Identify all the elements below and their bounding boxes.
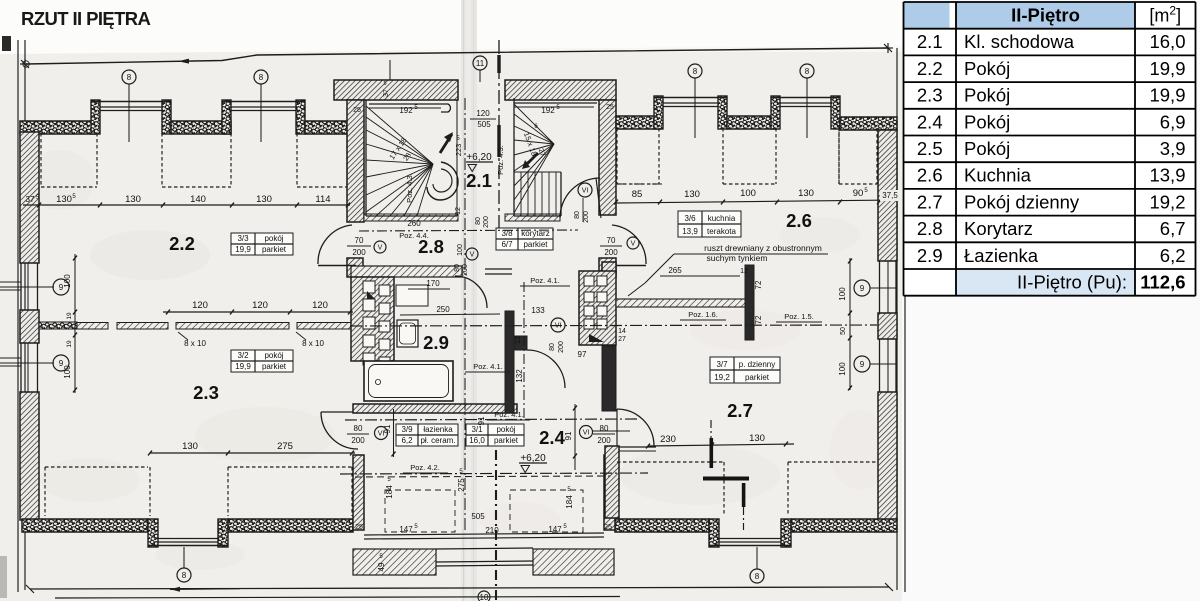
svg-text:pł. ceram.: pł. ceram. [420,436,455,445]
svg-text:Pokój: Pokój [964,111,1010,132]
svg-text:2.2: 2.2 [917,58,943,79]
svg-text:VI: VI [583,430,590,437]
svg-text:Poz. 1.6.: Poz. 1.6. [688,310,718,319]
svg-text:130: 130 [182,441,198,452]
svg-text:+6,20: +6,20 [520,453,546,464]
svg-text:80: 80 [454,264,461,272]
svg-text:100: 100 [63,274,72,288]
svg-text:49: 49 [377,562,386,571]
svg-text:9: 9 [860,360,865,369]
svg-text:2.6: 2.6 [786,210,812,231]
svg-text:12: 12 [740,268,748,275]
svg-text:114: 114 [315,194,330,205]
svg-text:8: 8 [259,73,264,82]
svg-text:112,6: 112,6 [1140,272,1185,293]
svg-text:97: 97 [578,350,587,359]
svg-text:kuchnia: kuchnia [708,214,736,223]
svg-text:72: 72 [754,315,763,324]
svg-text:2.2: 2.2 [169,233,195,254]
svg-text:19: 19 [66,312,73,320]
svg-text:70: 70 [355,236,364,245]
svg-text:200: 200 [352,248,366,257]
svg-text:19,9: 19,9 [1149,58,1185,79]
svg-text:140: 140 [190,194,206,205]
svg-text:80: 80 [549,343,556,351]
svg-text:8: 8 [755,572,760,581]
svg-text:6,7: 6,7 [1160,218,1186,239]
svg-text:130: 130 [256,194,272,205]
svg-text:6,2: 6,2 [401,436,413,445]
svg-text:37: 37 [383,89,390,97]
svg-text:184: 184 [565,495,574,509]
svg-text:ruszt drewniany z obustronnym: ruszt drewniany z obustronnym [704,243,822,253]
svg-text:pokój: pokój [264,234,283,243]
svg-text:37,5: 37,5 [882,191,898,200]
svg-text:6/7: 6/7 [501,240,513,249]
svg-text:200: 200 [558,341,565,353]
svg-text:Poz. 4.3.: Poz. 4.3. [405,173,414,203]
svg-text:130: 130 [749,433,765,444]
svg-text:200: 200 [483,216,490,228]
svg-text:Poz. 4.1.: Poz. 4.1. [530,276,560,285]
svg-text:120: 120 [312,300,328,311]
svg-text:Poz. 4.1.: Poz. 4.1. [494,410,524,419]
svg-text:p. dzienny: p. dzienny [739,360,775,369]
svg-text:2.7: 2.7 [917,191,943,212]
svg-text:2.1: 2.1 [466,170,492,191]
svg-text:3/3: 3/3 [237,234,249,243]
svg-text:133: 133 [531,306,545,315]
svg-text:10: 10 [480,593,489,601]
svg-text:8: 8 [182,571,187,580]
svg-text:210: 210 [485,526,499,535]
svg-text:200: 200 [604,248,618,257]
svg-text:Pokój dzienny: Pokój dzienny [964,191,1080,212]
svg-text:80: 80 [354,424,363,433]
svg-text:parkiet: parkiet [745,373,770,382]
svg-text:230: 230 [660,434,676,445]
svg-text:275: 275 [457,478,466,492]
svg-text:parkiet: parkiet [262,362,287,371]
svg-text:85: 85 [632,189,643,200]
svg-text:19,2: 19,2 [1149,191,1185,212]
svg-text:2.1: 2.1 [917,31,943,52]
svg-text:8 x 10: 8 x 10 [184,339,206,348]
svg-text:200: 200 [597,436,611,445]
svg-text:25: 25 [604,524,612,531]
svg-text:27: 27 [618,336,626,343]
svg-text:Pokój: Pokój [964,138,1010,159]
svg-text:Kuchnia: Kuchnia [964,165,1032,186]
svg-text:80: 80 [574,211,581,219]
svg-text:147: 147 [399,525,413,534]
svg-text:25: 25 [353,107,361,114]
svg-text:19,9: 19,9 [235,362,251,371]
svg-text:13,9: 13,9 [1149,165,1185,186]
svg-text:Poz. 4.3.: Poz. 4.3. [496,145,505,175]
svg-text:Łazienka: Łazienka [964,245,1039,266]
svg-text:16,0: 16,0 [469,436,485,445]
svg-text:14: 14 [618,328,626,335]
svg-text:80: 80 [475,217,482,225]
svg-text:80: 80 [600,424,609,433]
svg-text:70: 70 [607,236,616,245]
svg-text:V: V [378,245,383,252]
svg-text:2.3: 2.3 [193,382,219,403]
svg-text:147: 147 [548,525,562,534]
svg-text:II-Piętro (Pu):: II-Piętro (Pu): [1017,272,1127,293]
svg-text:Poz. 4.2.: Poz. 4.2. [410,463,440,472]
svg-text:184: 184 [385,485,394,499]
svg-text:łazienka: łazienka [423,425,453,434]
svg-text:3/7: 3/7 [716,360,728,369]
svg-text:130: 130 [125,194,141,205]
svg-text:265: 265 [668,266,682,275]
svg-text:RZUT II PIĘTRA: RZUT II PIĘTRA [21,8,151,29]
svg-text:25: 25 [606,104,614,111]
svg-text:37: 37 [26,195,35,204]
svg-text:2.7: 2.7 [727,400,753,421]
svg-text:505: 505 [477,120,491,129]
svg-text:505: 505 [471,512,485,521]
svg-text:pokój: pokój [264,351,283,360]
svg-text:Poz. 4.4.: Poz. 4.4. [399,231,429,240]
svg-text:6,9: 6,9 [1160,111,1186,132]
svg-text:260: 260 [407,219,421,228]
svg-text:13,9: 13,9 [682,227,698,236]
svg-text:72: 72 [754,280,763,289]
svg-text:pokój: pokój [496,425,515,434]
svg-text:2.4: 2.4 [539,427,565,448]
svg-text:2.3: 2.3 [917,85,943,106]
svg-text:+6,20: +6,20 [466,152,492,163]
svg-text:2.5: 2.5 [917,138,943,159]
svg-text:3/9: 3/9 [401,425,413,434]
svg-text:11: 11 [476,59,485,68]
svg-text:100: 100 [740,188,756,199]
svg-text:9: 9 [860,284,865,293]
svg-text:2.8: 2.8 [917,218,943,239]
svg-text:9: 9 [59,359,64,368]
svg-text:100: 100 [838,362,847,376]
svg-text:100: 100 [838,287,847,301]
svg-text:Pokój: Pokój [964,85,1010,106]
svg-text:275: 275 [277,441,293,452]
svg-text:192: 192 [399,106,413,115]
svg-text:91: 91 [477,416,486,425]
svg-text:parkiet: parkiet [262,245,287,254]
svg-text:25: 25 [355,524,363,531]
svg-text:parkiet: parkiet [494,436,519,445]
svg-text:9: 9 [59,283,64,292]
svg-text:16,0: 16,0 [1149,31,1185,52]
svg-text:170: 170 [426,279,440,288]
svg-text:3,9: 3,9 [1160,138,1186,159]
svg-text:192: 192 [541,106,555,115]
svg-text:90: 90 [853,188,864,199]
svg-text:12: 12 [515,336,522,344]
svg-text:120: 120 [476,109,490,118]
svg-text:12: 12 [455,207,462,215]
svg-text:130: 130 [798,188,814,199]
svg-text:3/2: 3/2 [237,351,249,360]
svg-text:VI: VI [582,188,589,195]
svg-text:II-Piętro: II-Piętro [1011,5,1080,26]
svg-text:3/6: 3/6 [684,214,696,223]
svg-text:200: 200 [351,436,365,445]
svg-text:parkiet: parkiet [523,240,548,249]
svg-text:120: 120 [252,300,268,311]
svg-text:Poz. 1.5.: Poz. 1.5. [784,312,814,321]
svg-text:223: 223 [454,144,463,157]
svg-text:Kl. schodowa: Kl. schodowa [964,31,1075,52]
svg-text:terakota: terakota [707,227,736,236]
svg-text:2.4: 2.4 [917,111,943,132]
svg-text:8: 8 [693,67,698,76]
svg-text:19,2: 19,2 [714,373,730,382]
svg-text:5: 5 [383,81,386,87]
svg-text:2.9: 2.9 [917,245,943,266]
svg-text:Pokój: Pokój [964,58,1010,79]
svg-text:250: 250 [436,305,450,314]
svg-text:120: 120 [192,300,208,311]
svg-text:[m2]: [m2] [1149,4,1181,26]
svg-text:50: 50 [840,327,847,335]
svg-text:V: V [631,241,636,248]
svg-text:130: 130 [56,194,72,205]
svg-text:200: 200 [583,211,590,223]
svg-text:VI: VI [378,431,385,438]
svg-text:91: 91 [564,431,573,440]
svg-text:2.9: 2.9 [423,332,449,353]
svg-text:19,9: 19,9 [1149,85,1185,106]
svg-text:2.6: 2.6 [917,165,943,186]
svg-text:8: 8 [127,73,132,82]
svg-text:Korytarz: Korytarz [964,218,1033,239]
svg-text:V: V [470,252,475,259]
svg-text:8: 8 [805,67,810,76]
svg-text:Poz. 4.1.: Poz. 4.1. [473,362,503,371]
svg-text:VI: VI [555,323,562,330]
svg-text:132: 132 [515,369,524,383]
svg-text:8 x 10: 8 x 10 [302,339,324,348]
svg-text:19,9: 19,9 [235,245,251,254]
svg-text:6,2: 6,2 [1160,245,1186,266]
svg-text:100: 100 [457,244,464,256]
svg-text:19: 19 [66,340,73,348]
svg-text:130: 130 [684,189,700,200]
